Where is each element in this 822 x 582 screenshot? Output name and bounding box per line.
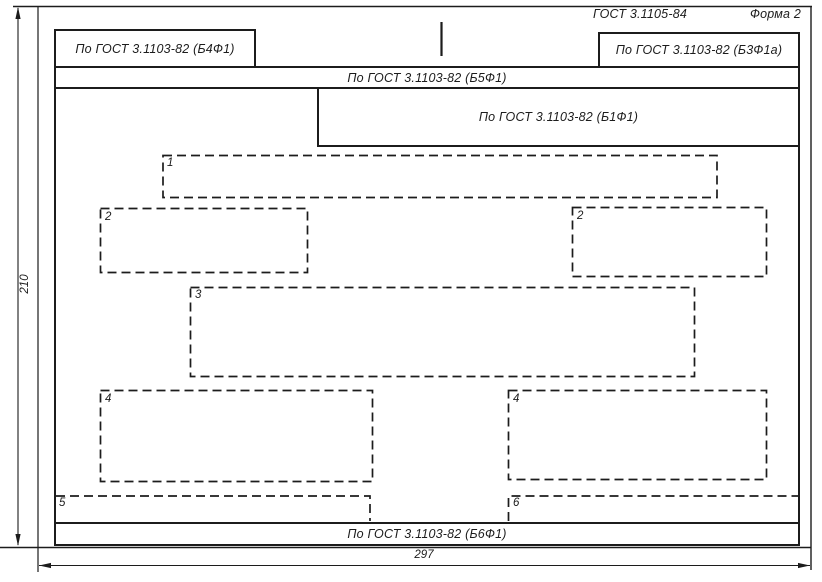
standard-number: ГОСТ 3.1105-84 [593, 7, 687, 21]
zone-3-label: 3 [195, 289, 201, 301]
block-b1f1-label: По ГОСТ 3.1103-82 (Б1Ф1) [479, 110, 638, 124]
dimension-arrow-up [15, 7, 20, 19]
sheet-height-dimension: 210 [19, 264, 33, 304]
zone-5-label: 5 [59, 497, 65, 509]
block-b4f1: По ГОСТ 3.1103-82 (Б4Ф1) [54, 29, 256, 68]
block-b5f1-band: По ГОСТ 3.1103-82 (Б5Ф1) [54, 66, 800, 89]
sheet-width-dimension: 297 [384, 549, 464, 561]
block-b5f1-label: По ГОСТ 3.1103-82 (Б5Ф1) [347, 71, 506, 85]
zone-2-left-label: 2 [105, 211, 111, 223]
zone-6-label: 6 [513, 497, 519, 509]
form-number: Форма 2 [750, 7, 801, 21]
block-b6f1-band: По ГОСТ 3.1103-82 (Б6Ф1) [54, 522, 800, 546]
dimension-arrow-right [798, 563, 810, 568]
block-b3f1a-label: По ГОСТ 3.1103-82 (Б3Ф1а) [616, 43, 782, 57]
zone-1-label: 1 [167, 157, 173, 169]
zone-4-right-label: 4 [513, 393, 519, 405]
dimension-arrow-down [15, 534, 20, 546]
zone-4-left-label: 4 [105, 393, 111, 405]
dimension-arrow-left [39, 563, 51, 568]
gost-form-layout-scheme: ГОСТ 3.1105-84 Форма 2 По ГОСТ 3.1103-82… [0, 0, 822, 582]
header: ГОСТ 3.1105-84 Форма 2 [593, 7, 801, 21]
block-b4f1-label: По ГОСТ 3.1103-82 (Б4Ф1) [75, 42, 234, 56]
zone-2-right-label: 2 [577, 210, 583, 222]
block-b1f1: По ГОСТ 3.1103-82 (Б1Ф1) [317, 87, 800, 147]
block-b6f1-label: По ГОСТ 3.1103-82 (Б6Ф1) [347, 527, 506, 541]
block-b3f1a: По ГОСТ 3.1103-82 (Б3Ф1а) [598, 32, 800, 68]
